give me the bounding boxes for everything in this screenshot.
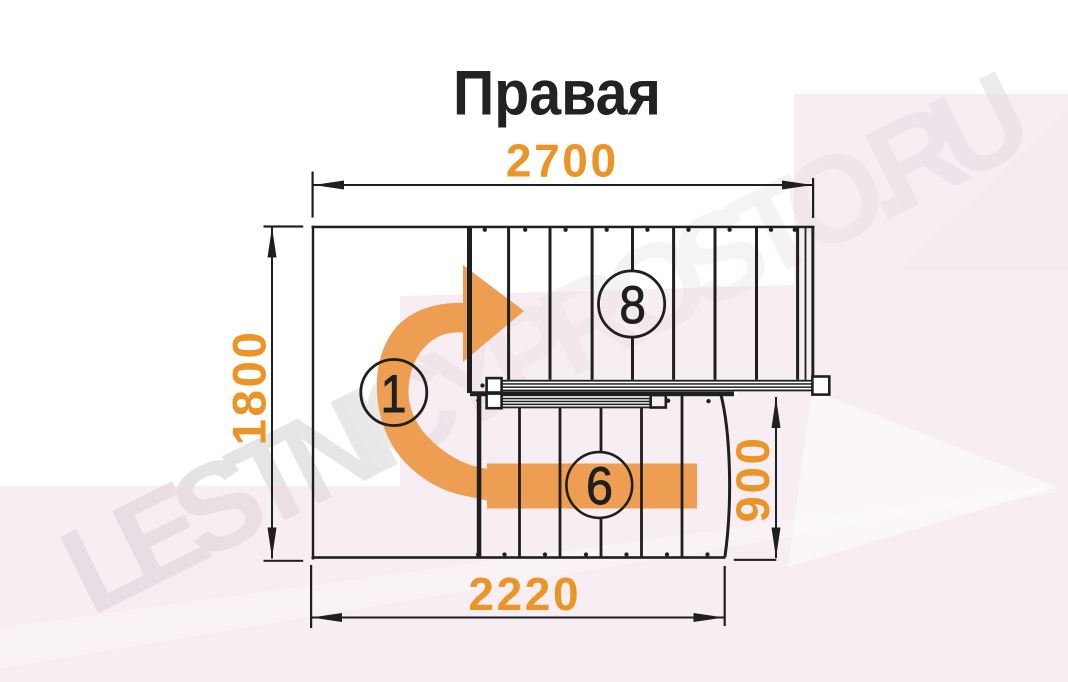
svg-text:Правая: Правая — [453, 59, 661, 129]
svg-text:1: 1 — [381, 365, 407, 424]
svg-text:2700: 2700 — [506, 135, 619, 187]
svg-text:8: 8 — [619, 276, 646, 335]
svg-text:6: 6 — [586, 457, 613, 516]
svg-text:900: 900 — [727, 435, 780, 522]
svg-text:2220: 2220 — [468, 568, 581, 620]
svg-text:1800: 1800 — [224, 329, 277, 445]
